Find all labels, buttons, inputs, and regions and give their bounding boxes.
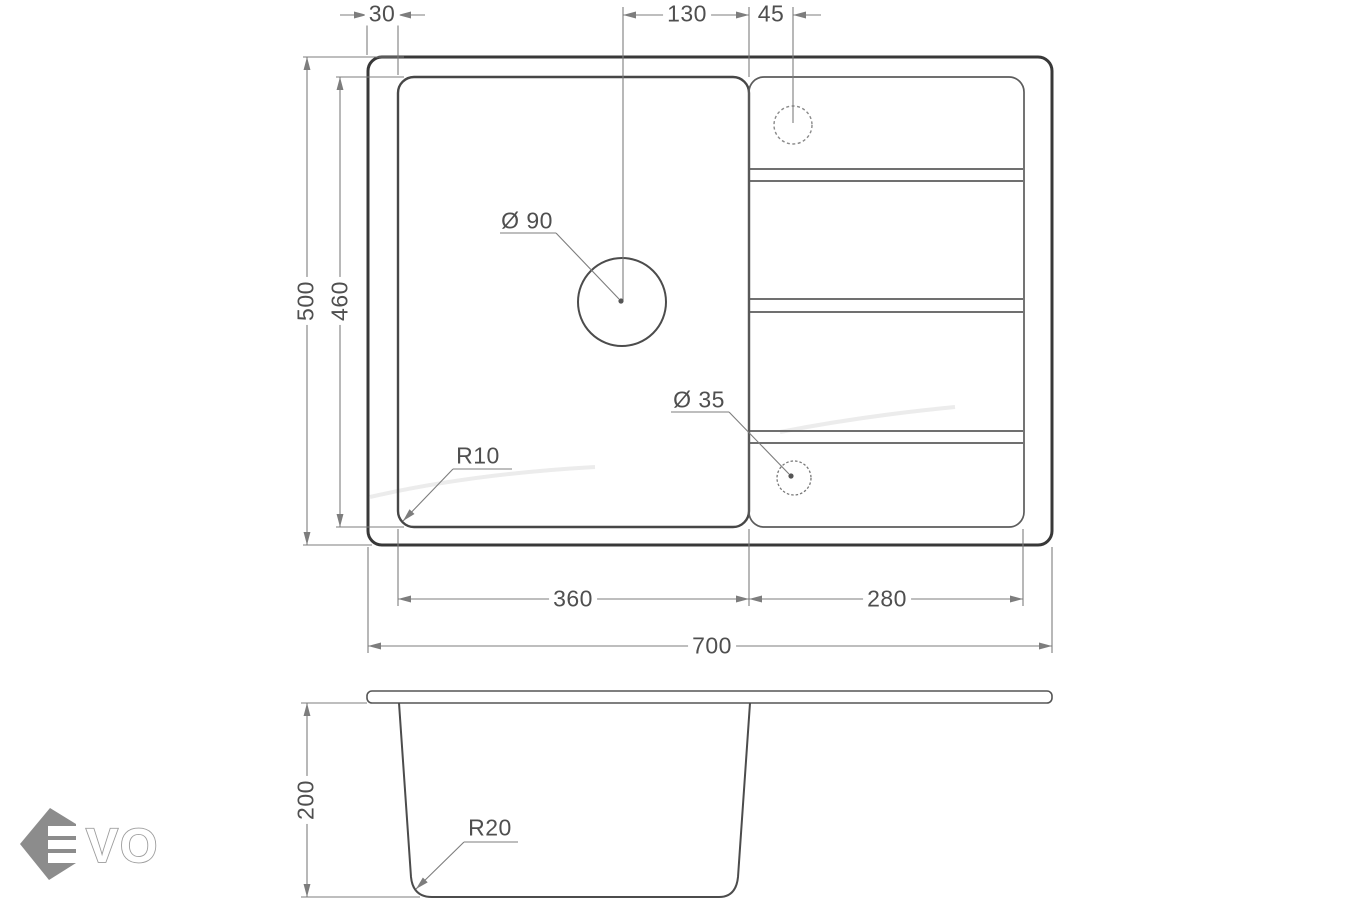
rim-profile (367, 691, 1052, 703)
bowl-profile (399, 703, 750, 897)
leader-drain-hole (500, 233, 624, 304)
technical-drawing-canvas: VO 30 130 45 500 460 Ø 90 Ø 35 R10 360 2… (0, 0, 1350, 900)
dim-label-overall-width: 700 (688, 635, 736, 658)
leader-bottom-radius (416, 842, 518, 889)
dim-label-drain-to-divider: 130 (663, 3, 711, 26)
bowl-outline (398, 77, 749, 527)
dim-label-tap-hole-diameter: Ø 35 (669, 389, 729, 412)
evo-logo: VO (20, 808, 159, 880)
dim-label-overall-depth: 500 (295, 277, 318, 325)
drainer-ridges (750, 169, 1023, 443)
dim-label-rim-offset: 30 (365, 3, 400, 26)
dim-label-bowl-inner-depth: 460 (329, 277, 352, 325)
dim-label-drainer-width: 280 (863, 588, 911, 611)
dim-label-divider-to-tap: 45 (754, 3, 789, 26)
logo-e-bar (48, 853, 85, 863)
leader-waste-hole (671, 412, 794, 479)
dim-label-drain-diameter: Ø 90 (497, 210, 557, 233)
logo-e-bar (48, 826, 85, 836)
drainer-outline (749, 77, 1024, 527)
dim-label-bowl-width: 360 (549, 588, 597, 611)
dim-label-bottom-radius: R20 (464, 817, 516, 840)
logo-letters: VO (86, 820, 159, 873)
logo-e-bar (48, 840, 85, 849)
dim-label-corner-radius: R10 (452, 445, 504, 468)
dim-label-bowl-depth: 200 (295, 776, 318, 824)
section-view (301, 691, 1052, 897)
sink-outer-outline (368, 57, 1052, 545)
plan-view (368, 57, 1052, 545)
sink-drawing: VO (0, 0, 1350, 900)
dimension-lines (303, 7, 1052, 889)
